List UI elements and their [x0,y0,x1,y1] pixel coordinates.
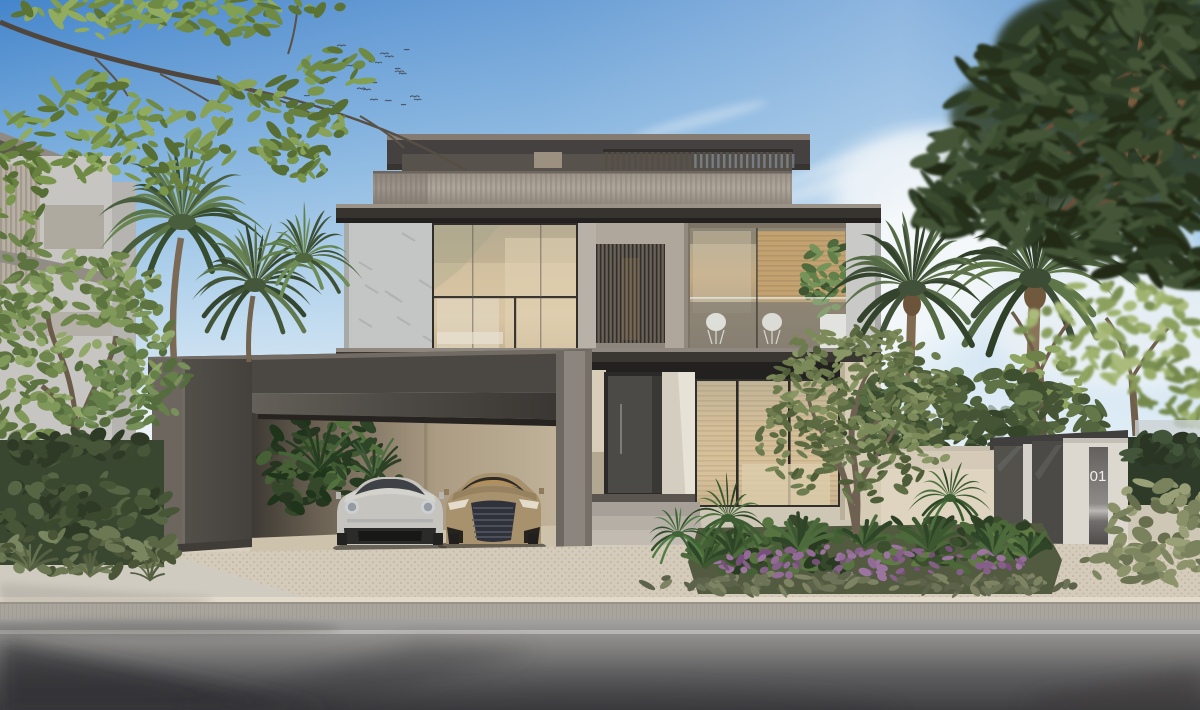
svg-text:01: 01 [1090,468,1107,485]
